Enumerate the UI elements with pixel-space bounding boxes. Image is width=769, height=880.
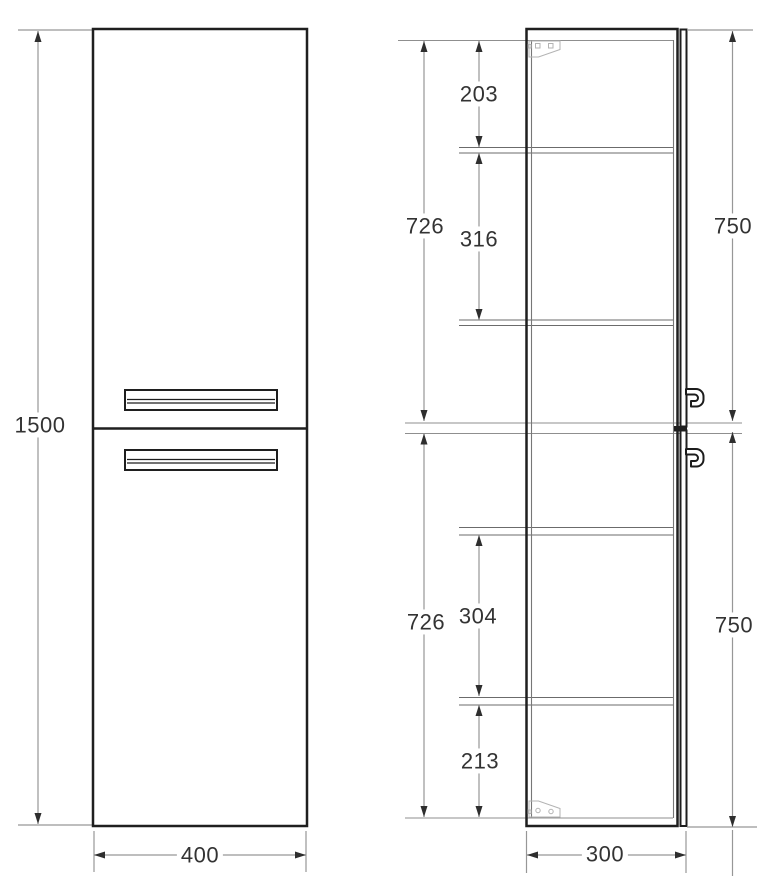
dim-label-upper-middle-gap: 316 [456,226,502,251]
dim-label-lower-door: 750 [711,612,757,637]
lower-handle-hook [686,449,704,467]
side-view [398,29,757,876]
upper-door-handle [125,390,277,410]
door-gap-junction [674,426,687,432]
cabinet-side-outline [527,29,678,826]
arrowhead-right [295,852,306,859]
arrowhead-down [35,813,42,824]
dim-label-upper-interior: 726 [402,213,448,238]
dim-label-upper-door: 750 [710,213,756,238]
dim-label-front-width: 400 [177,842,223,867]
cabinet-dimension-drawing: 1500 400 726 203 316 750 726 304 213 750… [0,0,769,880]
side-arrowheads [421,31,737,859]
panel-lines [398,41,742,819]
front-view [18,29,307,872]
top-mounting-bracket [528,41,560,57]
dim-label-lower-interior: 726 [403,609,449,634]
upper-handle-hook [686,389,704,407]
dim-label-front-height: 1500 [11,412,70,437]
dim-label-lower-middle-gap: 304 [455,603,501,628]
upper-door-profile [681,30,687,427]
bottom-mounting-bracket [528,801,560,817]
arrowhead-left [94,852,105,859]
dim-label-upper-top-gap: 203 [456,81,502,106]
lower-door-handle [125,450,277,470]
drawing-linework [0,0,769,880]
lower-door-profile [681,431,687,827]
dim-label-lower-bottom-gap: 213 [457,748,503,773]
dim-label-side-depth: 300 [582,841,628,866]
arrowhead-up [35,31,42,42]
